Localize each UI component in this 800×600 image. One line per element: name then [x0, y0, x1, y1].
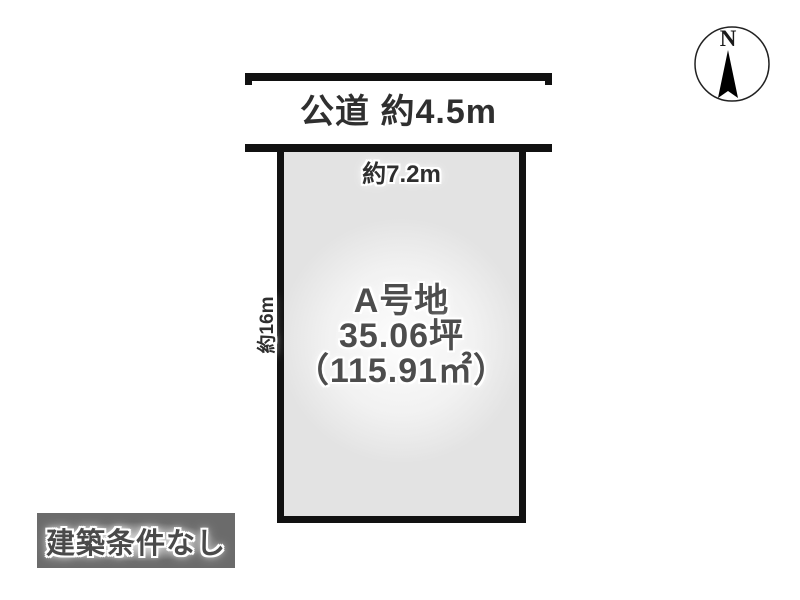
- compass-icon: N: [693, 25, 771, 103]
- plot-a: 約7.2m A号地 35.06坪 （115.91㎡）: [277, 144, 526, 523]
- compass-north-label: N: [720, 26, 737, 51]
- conditions-badge: 建築条件なし: [37, 513, 235, 568]
- plot-title: A号地 35.06坪 （115.91㎡）: [295, 284, 508, 389]
- plot-area-tsubo: 35.06坪: [295, 319, 508, 354]
- conditions-badge-label: 建築条件なし: [46, 520, 226, 562]
- plot-depth-label: 約16m: [258, 285, 278, 365]
- plot-width-label: 約7.2m: [284, 154, 519, 189]
- road-edge-bottom: [245, 144, 552, 152]
- plot-area-sqm: （115.91㎡）: [295, 354, 508, 389]
- plot-name: A号地: [295, 284, 508, 319]
- road-edge-top: [245, 73, 552, 81]
- site-plan-diagram: 公道 約4.5m 約7.2m A号地 35.06坪 （115.91㎡） 約16m…: [0, 0, 800, 600]
- road-label: 公道 約4.5m: [245, 92, 552, 132]
